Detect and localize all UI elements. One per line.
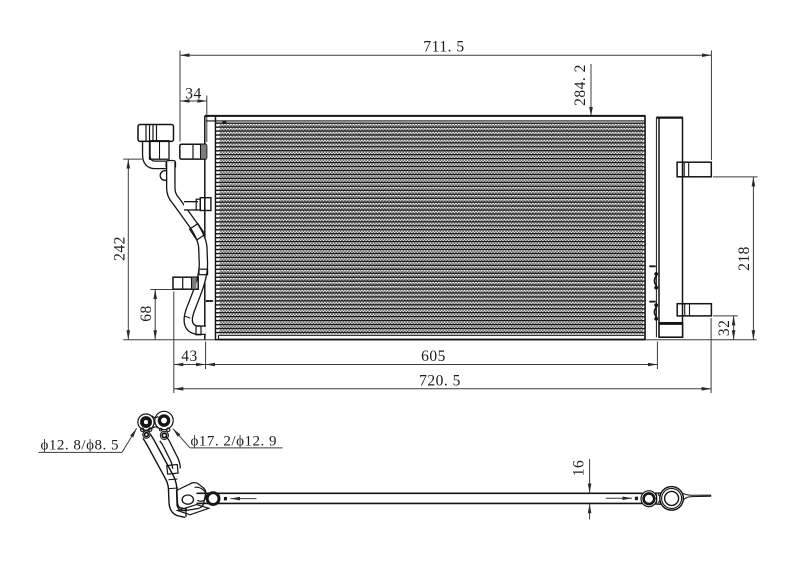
- svg-text:ϕ12. 8/ϕ8. 5: ϕ12. 8/ϕ8. 5: [41, 438, 119, 454]
- svg-text:16: 16: [571, 460, 588, 477]
- svg-text:ϕ17. 2/ϕ12. 9: ϕ17. 2/ϕ12. 9: [191, 434, 277, 450]
- svg-text:720. 5: 720. 5: [419, 372, 461, 389]
- svg-text:34: 34: [185, 86, 202, 103]
- svg-text:284. 2: 284. 2: [572, 64, 589, 106]
- svg-text:218: 218: [736, 246, 753, 271]
- svg-text:711. 5: 711. 5: [423, 39, 464, 56]
- svg-text:32: 32: [716, 320, 733, 337]
- svg-text:43: 43: [181, 348, 198, 365]
- svg-text:68: 68: [138, 305, 155, 322]
- svg-text:605: 605: [421, 348, 446, 365]
- svg-text:242: 242: [112, 236, 129, 261]
